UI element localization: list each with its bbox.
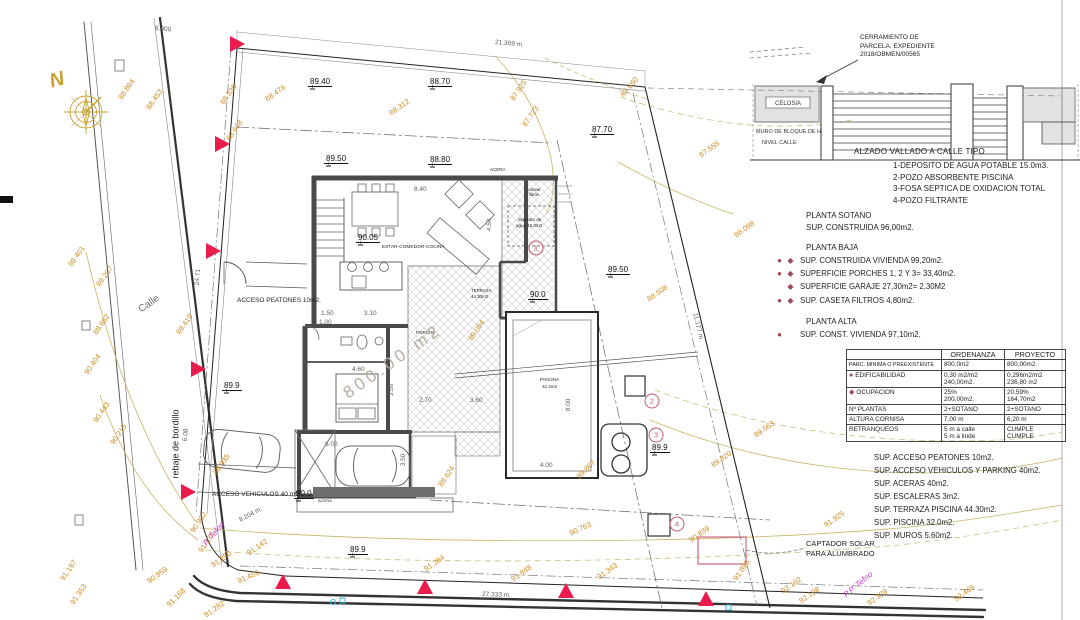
alzado-item: 1-DEPOSITO DE AGUA POTABLE 15.0m3. [893,160,1048,172]
table-row: PARC. MINIMA O PREEXISTENTE800,0m2800,00… [847,360,1066,371]
table-header: ORDENANZA [942,350,1005,360]
planta-alta-items: ● SUP. CONST. VIVIENDA 97,10m2. [774,328,921,341]
site-plan-canvas: CELOSIA MURO DE BLOQUE DE H. NIVEL CALLE… [0,0,1080,620]
legend-circle-icon: ● [774,269,785,278]
plan-annotation: 32.4m2 [542,385,557,390]
surface-schedule-row: ● SUP. CONST. VIVIENDA 97,10m2. [774,328,921,341]
contour-elevation-label: 88.476 [264,84,287,103]
ground-symbol-icon: ╧ [430,86,452,93]
sup-list-item: SUP. TERRAZA PISCINA 44.30m2. [874,503,1041,516]
contour-elevation-label: 90.404 [83,353,102,376]
dimension-label: 8.40 [414,187,427,194]
table-row-label: ●EDIFICABILIDAD [847,371,942,388]
contour-elevation-label: 91.168 [165,587,187,609]
contour-elevation-label: 89.563 [753,420,776,439]
plan-annotation: ESTAR-COMEDOR-COCINA [382,246,445,251]
plan-annotation: agua 15.0m3 [516,224,542,229]
table-row: Nº PLANTAS2+SOTANO2+SOTANO [847,405,1066,415]
table-cell: 800,00m2. [1005,360,1066,371]
planta-baja-items: ●◆SUP. CONSTRUIDA VIVIENDA 99,20m2.●◆SUP… [774,254,956,307]
surface-schedule-text: SUP. CONSTRUIDA VIVIENDA 99,20m2. [800,256,943,265]
alzado-items-list: 1-DEPOSITO DE AGUA POTABLE 15.0m3.2-POZO… [893,160,1048,206]
contour-elevation-label: 88.508 [646,284,669,303]
spot-elevation: 90.0╧ [294,490,314,505]
sup-list-item: SUP. PISCINA 32.0m2. [874,516,1041,529]
plan-annotation: PARA ALUMBRADO [806,550,875,558]
surface-schedule-row: ●◆SUPERFICIE PORCHES 1, 2 Y 3= 33,40m2. [774,267,956,280]
ground-symbol-icon: ╧ [608,274,630,281]
contour-elevation-label: 92.192 [780,576,803,595]
contour-elevation-label: 92.468 [953,584,976,603]
plan-annotation: P.P. Tefno [842,570,874,599]
contour-elevation-label: 91.250 [210,550,233,569]
table-header [847,350,942,360]
ground-symbol-icon: ╧ [310,86,332,93]
table-cell: 25%200,00m2. [942,388,1005,405]
contour-elevation-label: 89.662 [92,313,111,336]
table-cell: 20,59%164,70m2 [1005,388,1066,405]
legend-diamond-icon: ◆ [849,389,854,396]
table-cell: 2+SOTANO [1005,405,1066,415]
surface-schedule-row: ●◆SUP. CASETA FILTROS 4,80m2. [774,294,956,307]
table-cell: 6,20 m [1005,415,1066,425]
table-cell: 800,0m2 [942,360,1005,371]
contour-elevation-label: 89.935 [212,453,231,476]
plan-annotation: ACERA [318,499,332,503]
contour-elevation-label: 89.207 [95,265,114,288]
surface-schedule-text: SUPERFICIE GARAJE 27,30m2= 2,30M2 [800,282,945,291]
legend-diamond-icon: ◆ [785,269,796,278]
contour-elevation-label: 90.215 [109,423,128,446]
alzado-title: ALZADO VALLADO A CALLE TIPO [854,148,985,156]
dimension-label: 11.177 m [691,313,703,340]
table-row: ALTURA CORNISA7,00 m6,20 m [847,415,1066,425]
dimension-label: 24.71 [195,269,203,286]
table-row-label: ALTURA CORNISA [847,415,942,425]
sup-list-item: SUP. ESCALERAS 3m2. [874,490,1041,503]
plan-annotation: ACCESO VEHICULOS 40 m2. [212,492,301,499]
contour-elevation-label: 90.839 [688,525,711,544]
dimension-label: 6.000 [155,26,172,34]
dimension-label: 3.10 [364,311,377,318]
contour-elevation-label: 88.608 [225,119,244,142]
dimension-label: 8.00 [566,399,573,412]
plan-annotation: ACERA [490,168,506,173]
sup-list-item: SUP. ACCESO PEATONES 10m2. [874,451,1041,464]
contour-elevation-label: 91.343 [596,562,619,581]
ground-symbol-icon: ╧ [350,554,368,561]
alzado-item: 3-FOSA SEPTICA DE OXIDACION TOTAL [893,183,1048,195]
plan-annotation: deposito de [518,218,541,223]
planta-sotano-line: SUP. CONSTRUIDA 96,00m2. [806,224,914,232]
dimension-label: 3.60 [470,398,483,405]
planta-sotano-title: PLANTA SOTANO [806,212,872,220]
legend-diamond-icon: ◆ [785,296,796,305]
dimension-label: 21.309 m. [495,40,524,49]
plan-annotation: 44.30m2 [471,295,488,299]
contour-elevation-label: 91.282 [203,600,226,619]
ground-symbol-icon: ╧ [652,452,670,459]
table-cell: 5 m a calle5 m a linde [942,425,1005,442]
dimension-label: 1.00 [319,320,332,327]
dimension-label: 4.00 [540,463,553,470]
ground-symbol-icon: ╧ [326,163,348,170]
contour-elevation-label: 91.353 [69,583,88,606]
contour-elevation-label: 92.198 [798,586,821,605]
spot-elevation: 87.70╧ [590,126,614,141]
spot-elevation: 88.80╧ [428,156,452,171]
dimension-label: 6.08 [183,428,191,441]
contour-elevation-label: 92.329 [866,588,889,607]
contour-elevation-label: 91.142 [246,538,269,557]
contour-elevation-label: 88.453 [145,88,164,111]
contour-elevation-label: 88.098 [733,220,756,239]
surface-list: SUP. ACCESO PEATONES 10m2.SUP. ACCESO VE… [874,451,1041,542]
dimension-label: 6.00 [325,442,338,449]
sup-list-item: SUP. ACERAS 40m2. [874,477,1041,490]
ground-symbol-icon: ╧ [296,498,314,505]
dimension-label: 3.50 [389,384,396,397]
legend-circle-icon: ● [774,256,785,265]
spot-elevation: 90.05╧ [356,234,380,249]
contour-elevation-label: 87.925 [509,79,528,102]
legend-circle-icon: ● [774,330,785,339]
dimension-label: 2.70 [419,398,432,405]
plan-annotation: N [47,69,66,92]
contour-elevation-label: 90.763 [568,521,592,537]
planta-alta-title: PLANTA ALTA [806,318,857,326]
contour-elevation-label: 90.443 [92,401,111,424]
sup-list-item: SUP. ACCESO VEHICULOS Y PARKING 40m2. [874,464,1041,477]
dimension-label: 3.50 [401,454,408,467]
contour-elevation-label: 90.959 [146,566,169,585]
spot-elevation: 90.0╧ [528,291,548,306]
contour-elevation-label: 91.895 [732,559,751,582]
dimension-label: 4.60 [352,367,365,374]
table-row: ●EDIFICABILIDAD0,30 m2/m2240,00m2.0,296m… [847,371,1066,388]
surface-schedule-text: SUPERFICIE PORCHES 1, 2 Y 3= 33,40m2. [800,269,956,278]
table-cell: 7,00 m [942,415,1005,425]
spot-elevation: 89.40╧ [308,78,332,93]
contour-elevation-label: 88.650 [619,76,639,98]
spot-elevation: 89.9╧ [348,546,368,561]
alzado-item: 2-POZO ABSORBENTE PISCINA [893,172,1048,184]
table-header: PROYECTO [1005,350,1066,360]
table-row: ◆OCUPACION25%200,00m2.20,59%164,70m2 [847,388,1066,405]
contour-elevation-label: 90.902 [189,511,208,534]
cerramiento-line1: CERRAMIENTO DE [860,34,935,43]
plan-annotation: CAPTADOR SOLAR [806,540,875,548]
table-row-label: Nº PLANTAS [847,405,942,415]
contour-elevation-label: 88.336 [219,83,238,106]
table-cell: CUMPLECUMPLE [1005,425,1066,442]
contour-elevation-label: 89.401 [67,245,86,268]
sup-list-item: SUP. MUROS 5.60m2. [874,529,1041,542]
plan-annotation: ACCESO PEATONES 10m2. [237,298,321,305]
ordinance-table: ORDENANZAPROYECTOPARC. MINIMA O PREEXIST… [846,349,1066,442]
plan-annotation: rebaje de bordillo [172,409,181,478]
cerramiento-line2: PARCELA. EXPEDIENTE [860,43,935,52]
contour-elevation-label: 91.925 [823,510,846,529]
ground-symbol-icon: ╧ [530,299,548,306]
legend-diamond-icon: ◆ [785,256,796,265]
table-row-label: PARC. MINIMA O PREEXISTENTE [847,360,942,371]
ground-symbol-icon: ╧ [358,242,380,249]
contour-elevation-label: 91.197 [59,559,78,582]
cerramiento-note: CERRAMIENTO DE PARCELA. EXPEDIENTE 2018/… [860,34,935,60]
spot-elevation: 89.9╧ [650,444,670,459]
plan-annotation: Calle [137,294,161,315]
legend-diamond-icon: ◆ [785,282,796,291]
cerramiento-line3: 2018/OBMEN/00565 [860,51,935,60]
spot-elevation: 89.50╧ [606,266,630,281]
spot-elevation: 89.50╧ [324,155,348,170]
surface-schedule-row: ●◆SUP. CONSTRUIDA VIVIENDA 99,20m2. [774,254,956,267]
contour-elevation-label: 88.884 [117,78,136,101]
table-row-label: RETRANQUEOS [847,425,942,442]
contour-elevation-label: 87.555 [698,140,721,159]
surface-schedule-text: SUP. CONST. VIVIENDA 97,10m2. [800,330,921,339]
plan-annotation: TERRAZA [471,289,492,293]
ground-symbol-icon: ╧ [592,134,614,141]
contour-elevation-label: 89.094 [467,319,486,342]
spot-elevation: 88.70╧ [428,78,452,93]
legend-circle-icon: ● [849,372,853,379]
contour-elevation-label: 91.384 [423,554,446,573]
contour-elevation-label: 89.867 [575,459,597,481]
contour-elevation-label: 89.419 [175,313,194,336]
dimension-label: 4.50 [487,219,494,232]
contour-elevation-label: 88.312 [388,98,411,117]
contour-elevation-label: 89.820 [710,450,733,469]
table-cell: 2+SOTANO [942,405,1005,415]
contour-elevation-label: 91.137 [197,531,216,554]
table-row-label: ◆OCUPACION [847,388,942,405]
ground-symbol-icon: ╧ [224,390,242,397]
surface-schedule-text: SUP. CASETA FILTROS 4,80m2. [800,296,914,305]
dimension-label: 1.50 [321,311,334,318]
spot-elevation: 89.9╧ [222,382,242,397]
surface-schedule-row: ◆SUPERFICIE GARAJE 27,30m2= 2,30M2 [774,280,956,293]
contour-elevation-label: 87.723 [521,105,540,128]
legend-circle-icon: ● [774,296,785,305]
contour-elevation-label: 91.459 [236,569,260,585]
plan-annotation: filtros [529,193,539,197]
ground-symbol-icon: ╧ [430,164,452,171]
planta-baja-title: PLANTA BAJA [806,244,858,252]
table-row: RETRANQUEOS5 m a calle5 m a lindeCUMPLEC… [847,425,1066,442]
dimension-label: 8.204 m. [238,507,263,525]
dimension-label: 27.333 m. [482,592,511,600]
contour-elevation-label: 89.624 [437,465,456,488]
table-cell: 0,30 m2/m2240,00m2. [942,371,1005,388]
table-cell: 0,296m2/m2236,80 m2 [1005,371,1066,388]
alzado-item: 4-POZO FILTRANTE [893,195,1048,207]
contour-elevation-label: 91.848 [510,564,533,583]
